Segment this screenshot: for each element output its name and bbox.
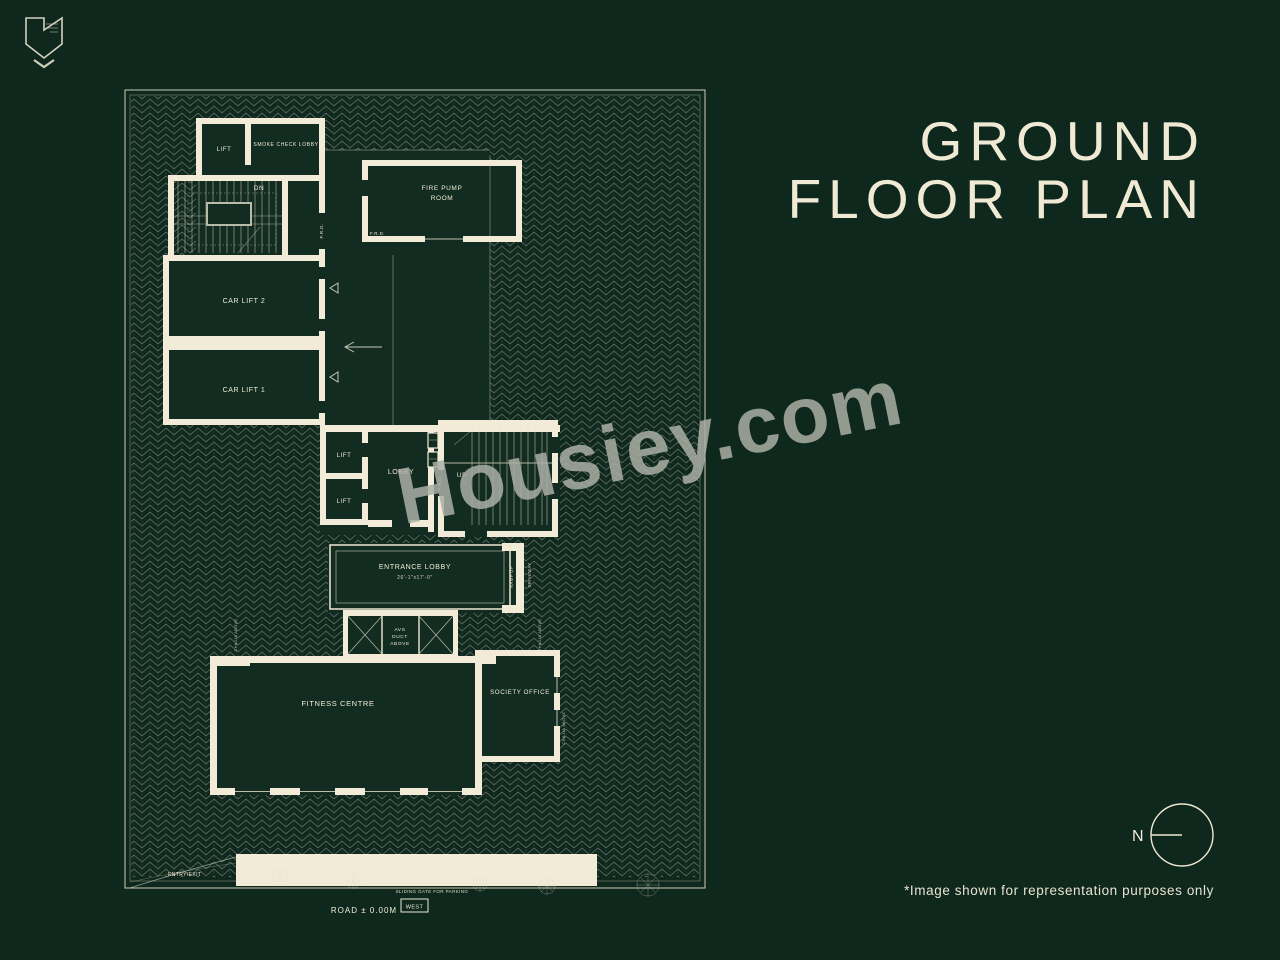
lift-mid-lower-label: LIFT — [337, 499, 352, 505]
title-line-1: GROUND — [788, 112, 1206, 170]
north-indicator: N — [1120, 795, 1230, 875]
entrance-lobby-label: ENTRANCE LOBBY — [379, 564, 451, 571]
north-label: N — [1132, 828, 1144, 845]
avs-duct-label-3: ABOVE — [390, 641, 410, 647]
west-marker: WEST — [401, 899, 428, 912]
entrance-lobby-dimension: 26'-1"x17'-0" — [397, 575, 433, 581]
disclaimer-text: *Image shown for representation purposes… — [904, 883, 1214, 898]
title-line-2: FLOOR PLAN — [788, 170, 1206, 228]
car-lift-2-label: CAR LIFT 2 — [223, 298, 266, 305]
frd-annotation-1: F.R.D. — [319, 224, 324, 239]
west-label: WEST — [406, 905, 424, 911]
road-level-label: ROAD ± 0.00M — [331, 906, 397, 915]
entry-exit-label: ENTRY/EXIT — [168, 872, 201, 878]
chajja-annotation-2: CHAJJA ABOVE — [234, 619, 238, 652]
fitness-centre-label: FITNESS CENTRE — [302, 699, 375, 708]
avs-duct-label-2: DUCT — [392, 634, 408, 640]
smoke-check-lobby-label: SMOKE CHECK LOBBY — [253, 142, 318, 148]
chajja-annotation-1: CHAJJA ABOVE — [538, 619, 542, 652]
stair-dn-label: DN — [254, 185, 265, 192]
driveway-annotation: DRIVEWAY — [527, 562, 532, 587]
ground-floor-plan-page: GROUND FLOOR PLAN — [0, 0, 1280, 960]
fire-pump-room-label-2: ROOM — [431, 195, 454, 202]
lift-top-label: LIFT — [217, 147, 232, 153]
avs-duct-label-1: AVS — [394, 627, 405, 633]
chajja-annotation-3: CHAJJA ABOVE — [562, 712, 566, 745]
ramp-up-annotation: RAMP UP — [509, 566, 514, 588]
fire-pump-room-label-1: FIRE PUMP — [422, 185, 463, 192]
sliding-gate-label: SLIDING GATE FOR PARKING — [396, 889, 469, 894]
page-title: GROUND FLOOR PLAN — [788, 112, 1206, 229]
car-lift-1-label: CAR LIFT 1 — [223, 387, 266, 394]
frd-annotation-2: F.R.D. — [370, 231, 385, 236]
sliding-gate-bar — [236, 854, 597, 886]
brand-shield-logo-icon — [22, 12, 66, 70]
lift-mid-upper-label: LIFT — [337, 453, 352, 459]
society-office-label: SOCIETY OFFICE — [490, 689, 550, 696]
